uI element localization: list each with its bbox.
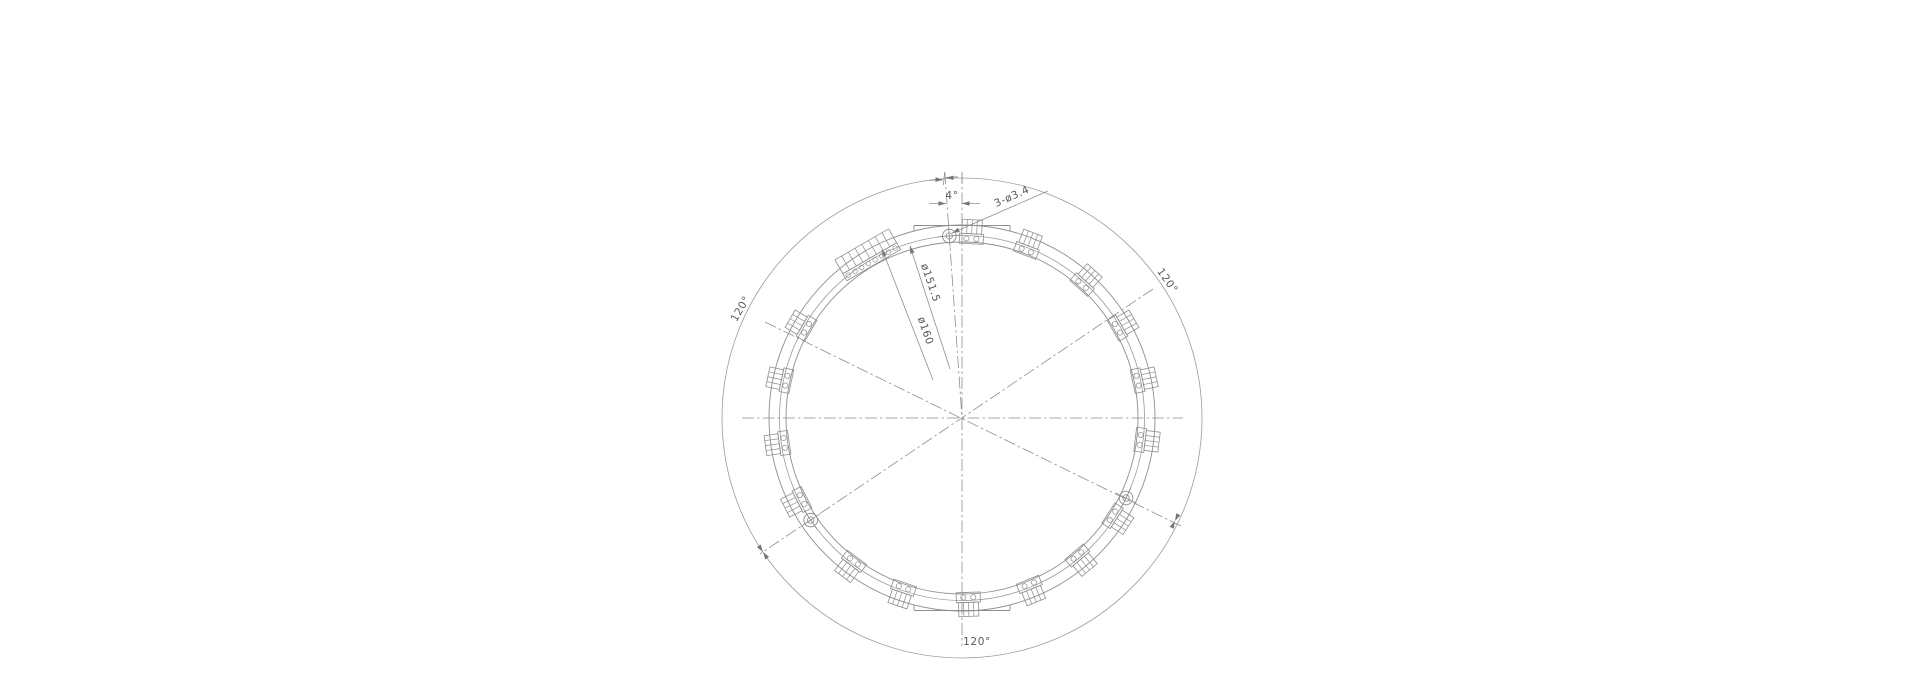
arrowhead-icon	[939, 201, 947, 206]
terminal-block	[1065, 544, 1099, 578]
dim-extension-tick	[944, 173, 945, 186]
centerline-diag-116	[765, 322, 1183, 527]
centerline-hole-4deg	[945, 172, 962, 418]
arrowhead-icon	[962, 201, 970, 206]
dim-spacing-label-bottom: 120°	[963, 637, 991, 648]
arrowhead-icon	[908, 245, 915, 254]
terminal-block	[956, 592, 981, 617]
terminal-block	[1070, 262, 1104, 296]
terminal-block	[1102, 503, 1135, 536]
arrowhead-icon	[761, 551, 769, 560]
terminal-block	[833, 550, 867, 584]
engineering-drawing-sheet: 4° 3-ø3.4 ø151.5 ø160 120° 120° 120°	[0, 0, 1920, 694]
ring-drawing-canvas	[0, 0, 1920, 694]
terminal-block	[1130, 365, 1158, 393]
arrowhead-icon	[757, 544, 765, 553]
arrowhead-icon	[935, 177, 943, 182]
long-terminal-strip	[835, 229, 901, 281]
terminal-block	[765, 365, 793, 393]
arrowhead-icon	[946, 175, 954, 180]
terminal-block	[1107, 308, 1140, 341]
terminal-block	[959, 219, 984, 244]
dim-angle-offset-label: 4°	[945, 191, 958, 202]
terminal-block	[784, 308, 817, 341]
